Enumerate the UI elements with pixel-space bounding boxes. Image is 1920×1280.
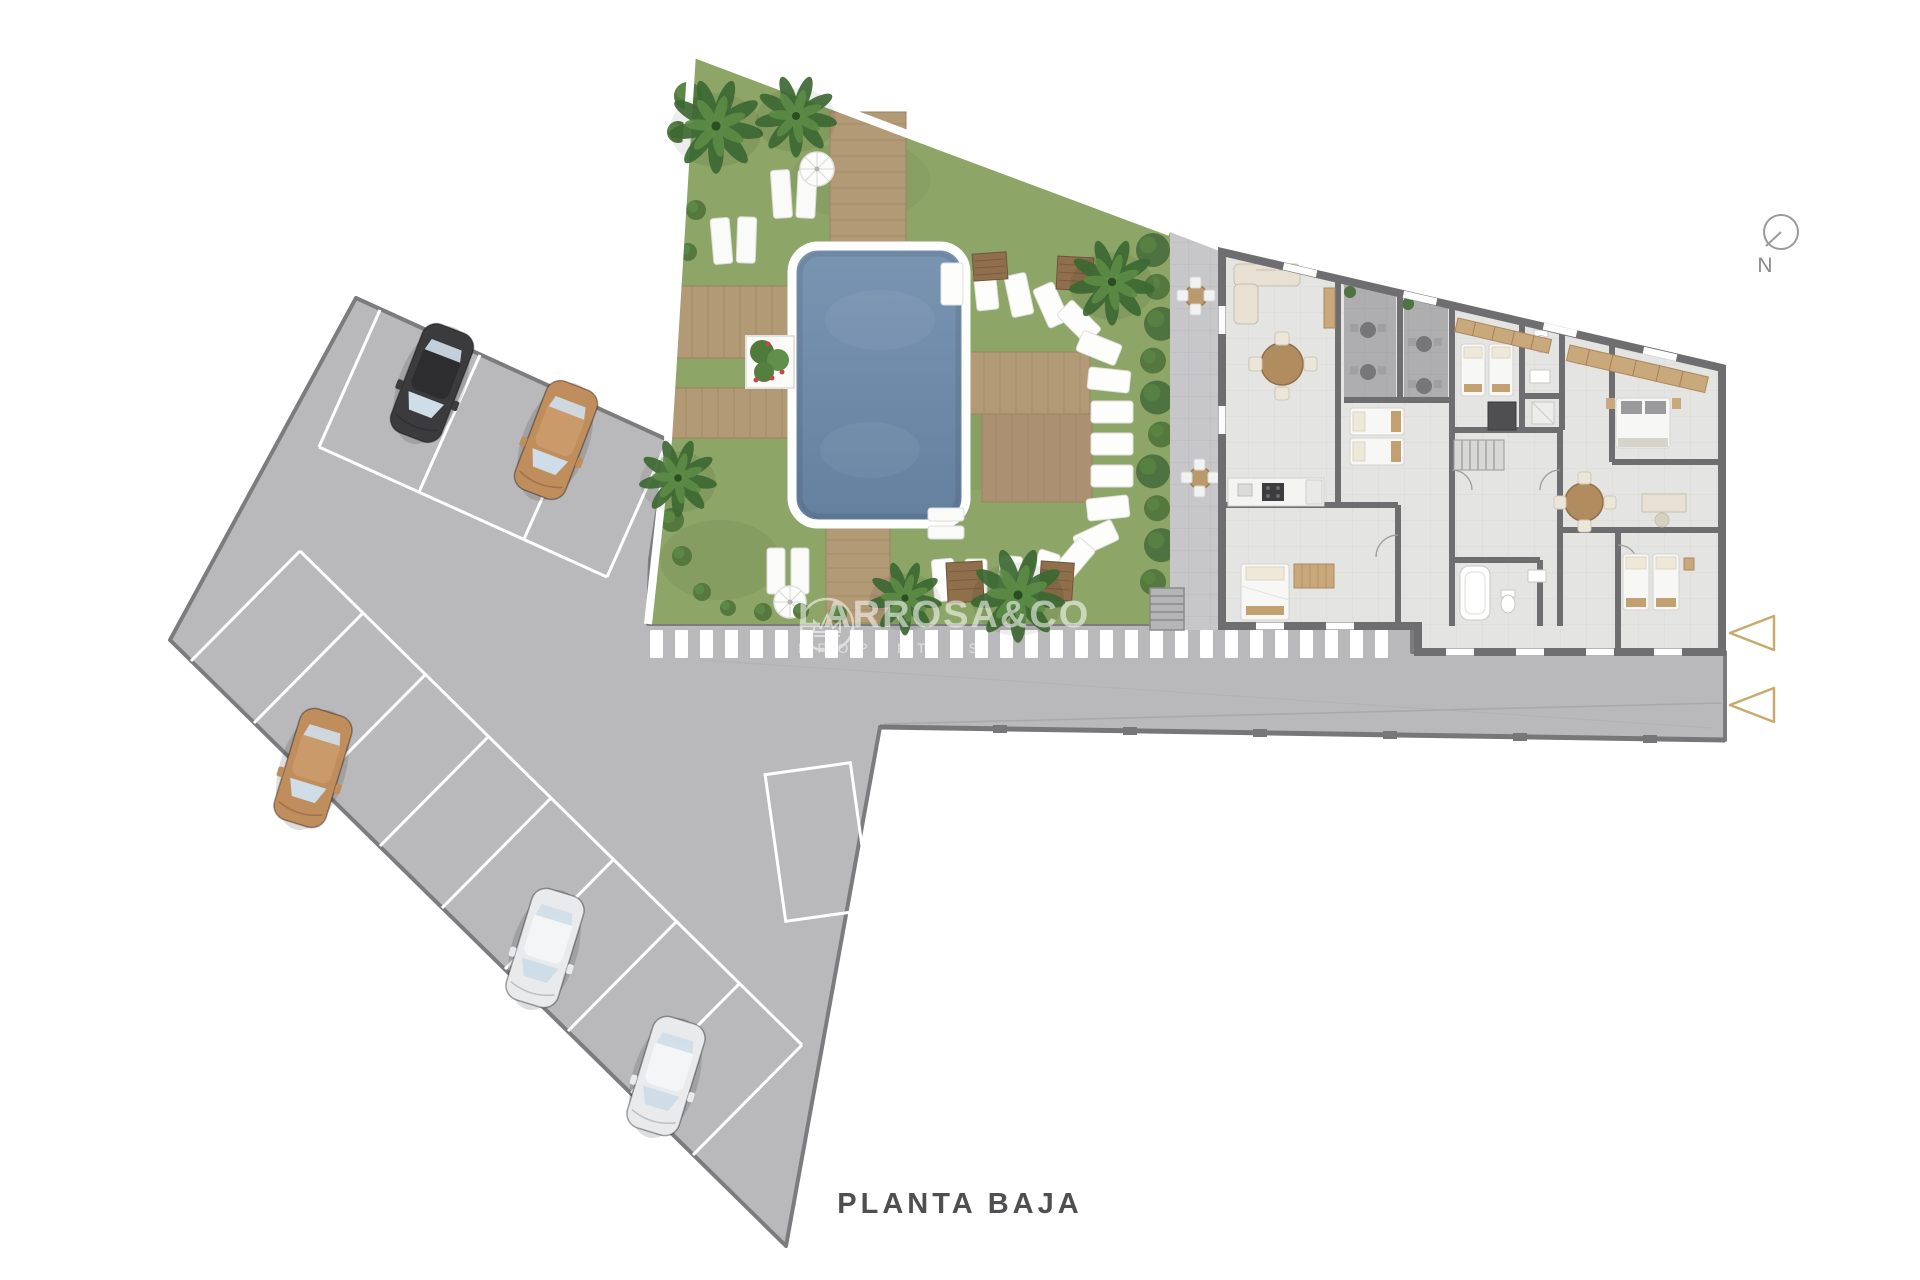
garden-bench [972,252,1008,281]
bush [720,600,736,616]
hedge-bush [1144,495,1170,521]
crosswalk-stripe [675,630,688,658]
hedge-bush [1136,454,1170,488]
crosswalk-stripe [975,630,988,658]
wall-bench [1324,288,1335,328]
bed [1461,344,1485,396]
plan-title: PLANTA BAJA [760,1188,1160,1221]
stepping-stone [1091,401,1133,423]
sink [1530,370,1550,383]
triangle-left-icon [1730,616,1774,650]
toilet [1501,590,1515,613]
crosswalk-stripe [1225,630,1238,658]
crosswalk-stripe [1100,630,1113,658]
crosswalk-stripe [1175,630,1188,658]
nightstand [1684,558,1694,570]
bed [1489,344,1513,396]
crosswalk-stripe [1125,630,1138,658]
crosswalk-stripe [775,630,788,658]
triangle-left-icon [1730,688,1774,722]
crosswalk-stripe [1375,630,1388,658]
crosswalk-stripe [1200,630,1213,658]
stepping-stone [1086,495,1130,521]
crosswalk-stripe [800,630,813,658]
crosswalk-stripe [725,630,738,658]
hedge-bush [1140,348,1166,374]
crosswalk-stripe [950,630,963,658]
bed [1623,554,1649,610]
building-layer [1219,252,1723,656]
deck-lounge-platform [968,352,1092,502]
crosswalk-stripe [1350,630,1363,658]
wardrobe [1294,564,1334,588]
garden-layer [638,53,1221,643]
sink [1528,570,1546,582]
terrace [1344,283,1396,400]
entrance-arrows [1730,616,1774,722]
crosswalk-stripe [650,630,663,658]
bush [793,603,809,619]
elevator [1488,402,1516,430]
planter [746,336,794,388]
stepping-stone [941,263,963,305]
compass: N [1757,215,1798,277]
crosswalk-stripe [1075,630,1088,658]
site-plan: N [0,0,1920,1280]
crosswalk-stripe [700,630,713,658]
hedge-bush [1140,381,1174,415]
compass-needle [1766,232,1781,246]
umbrella-icon [800,152,834,186]
stepping-stone [1087,367,1131,393]
crosswalk-stripe [1300,630,1313,658]
bathtub [1460,566,1490,620]
bed [1350,408,1404,435]
crosswalk-stripe [925,630,938,658]
crosswalk-stripe [850,630,863,658]
bed [1350,438,1404,465]
crosswalk-stripe [825,630,838,658]
bush [829,605,847,623]
crosswalk-stripe [1325,630,1338,658]
swimming-pool [792,246,966,524]
outdoor-stairs [1150,588,1184,630]
floor-plan-page: N LARROSA&CO PROPERTIES PLANTA BAJA [0,0,1920,1280]
stepping-stone [1091,465,1133,487]
crosswalk-stripe [1250,630,1263,658]
compass-label: N [1757,254,1772,277]
crosswalk-stripe [1275,630,1288,658]
bed [1653,554,1679,610]
bush [754,603,772,621]
shower [1532,402,1554,424]
crosswalk-stripe [750,630,763,658]
bed [1606,398,1681,448]
bush [693,583,711,601]
crosswalk-stripe [875,630,888,658]
kitchen-counter [1228,478,1324,506]
terrace [1402,297,1448,400]
bush [686,200,706,220]
crosswalk-stripe [1050,630,1063,658]
stepping-stone [1091,433,1133,455]
bed [1241,564,1289,620]
bush [672,546,692,566]
stairs [1454,440,1504,470]
crosswalk-stripe [1150,630,1163,658]
